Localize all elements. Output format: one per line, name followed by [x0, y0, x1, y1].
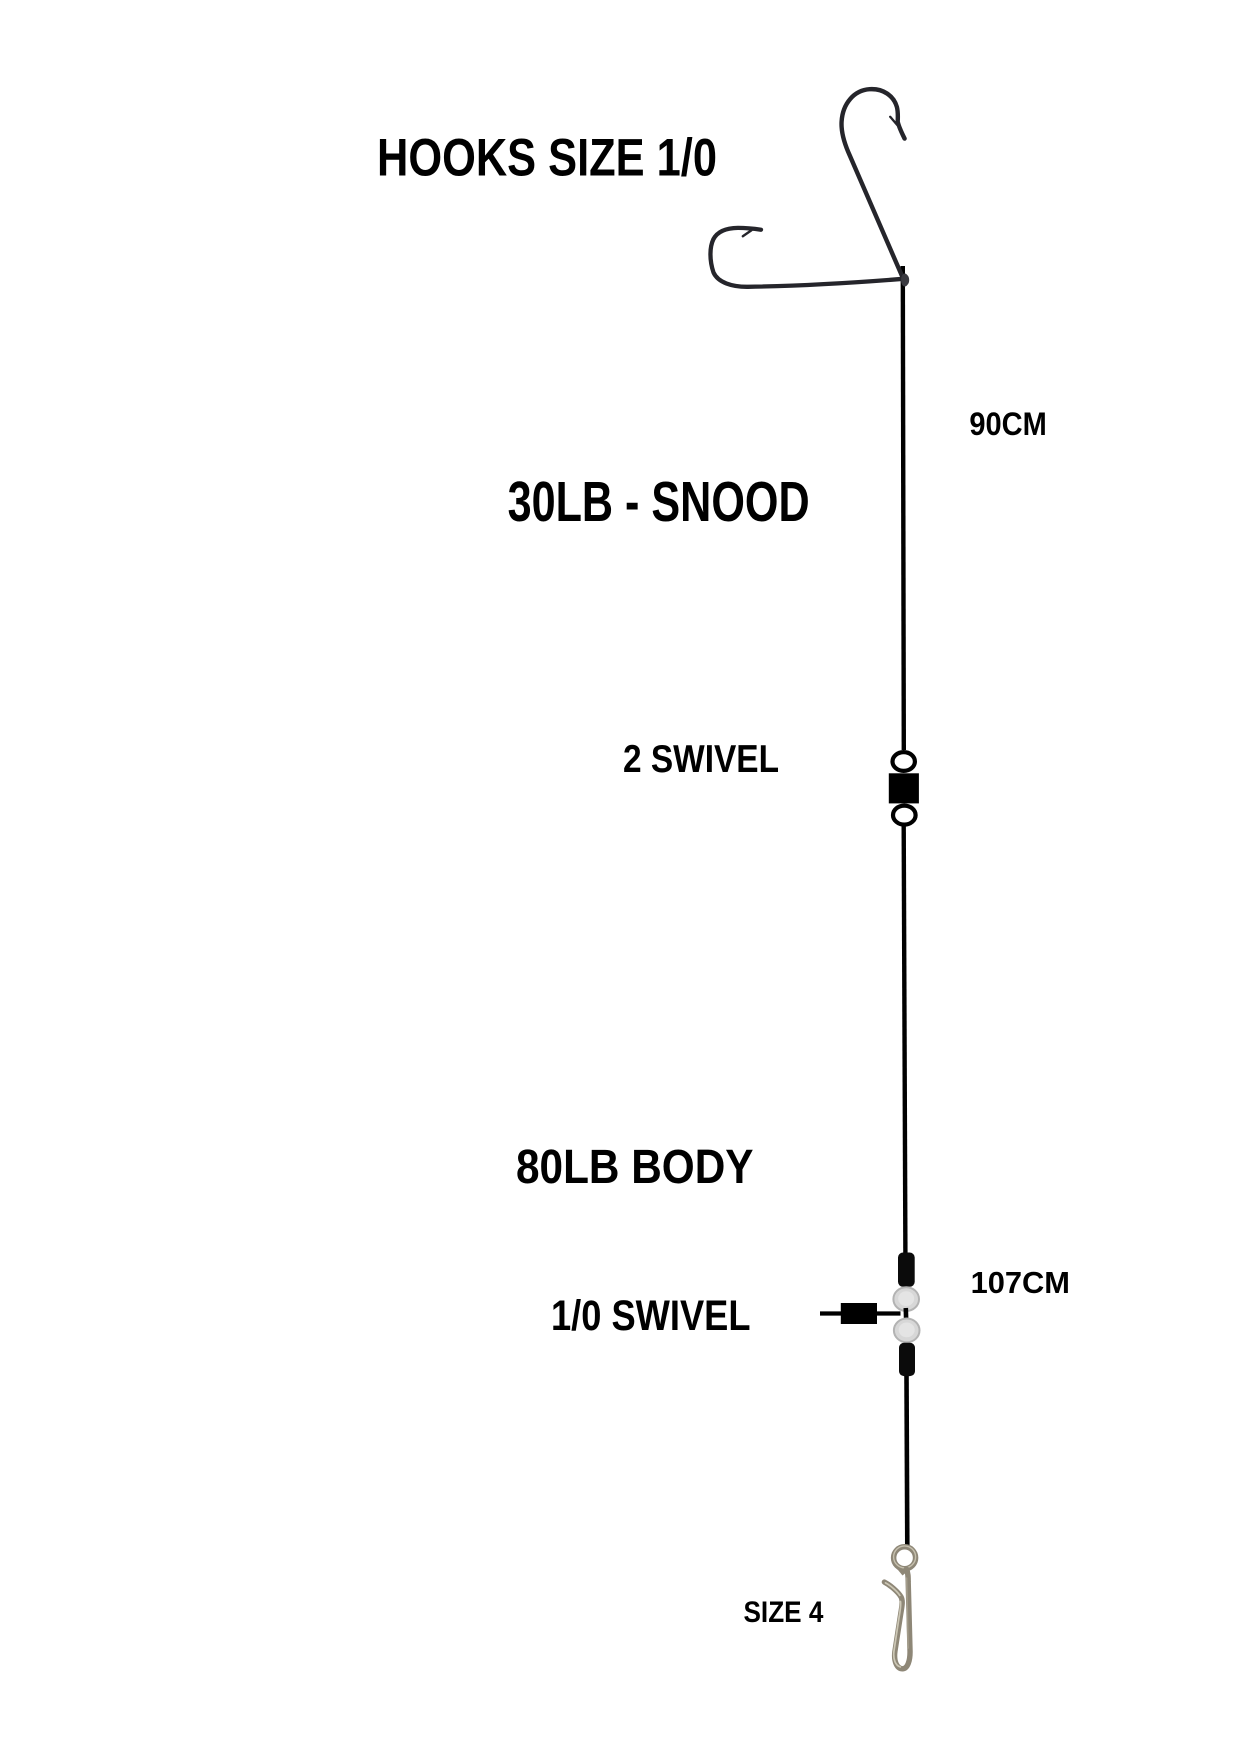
svg-text:107CM: 107CM	[971, 1265, 1070, 1300]
svg-text:80LB BODY: 80LB BODY	[516, 1140, 754, 1194]
svg-text:SIZE 4: SIZE 4	[744, 1596, 824, 1629]
svg-text:30LB - SNOOD: 30LB - SNOOD	[508, 470, 810, 534]
svg-text:90CM: 90CM	[969, 406, 1046, 442]
svg-text:2 SWIVEL: 2 SWIVEL	[623, 738, 779, 781]
svg-text:HOOKS SIZE 1/0: HOOKS SIZE 1/0	[377, 129, 717, 188]
svg-text:1/0 SWIVEL: 1/0 SWIVEL	[551, 1292, 751, 1340]
